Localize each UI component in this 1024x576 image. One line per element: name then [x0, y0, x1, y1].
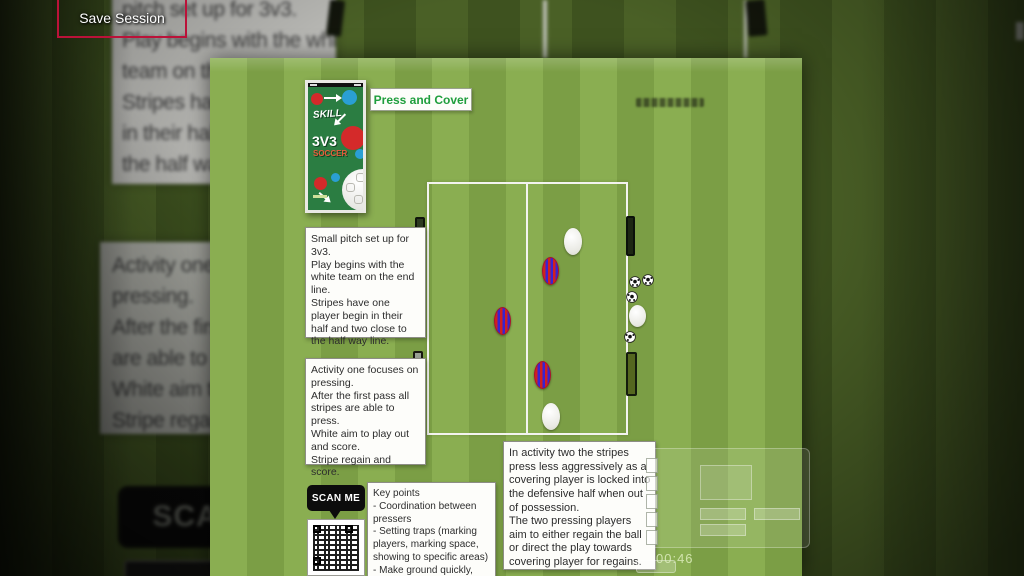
activity-two-note[interactable]: In activity two the stripes press less a… — [503, 441, 656, 570]
book-author-text-blur — [313, 195, 327, 198]
ghost-toolbar-chip — [646, 494, 658, 509]
white-player-3[interactable] — [629, 305, 646, 327]
book-title-soccer: SOCCER — [313, 150, 347, 158]
background-goal-post — [745, 0, 767, 37]
ghost-toolbar-chip — [646, 530, 658, 545]
stripes-player-2[interactable] — [494, 307, 511, 335]
soccer-ball-icon[interactable] — [642, 273, 654, 285]
qr-code-sheet — [307, 519, 365, 576]
scan-me-bubble: SCAN ME — [307, 485, 365, 511]
drill-pitch — [427, 182, 628, 435]
key-points-title: Key points — [373, 488, 491, 501]
soccer-ball-icon[interactable] — [624, 330, 636, 342]
book-red-circle-large — [341, 126, 365, 150]
white-player-1[interactable] — [564, 228, 582, 255]
soccer-ball-icon[interactable] — [629, 275, 641, 287]
ghost-toolbar-chip — [646, 476, 658, 491]
activity-one-note[interactable]: Activity one focuses on pressing. After … — [305, 358, 426, 465]
setup-note[interactable]: Small pitch set up for 3v3. Play begins … — [305, 227, 426, 338]
book-red-circle — [311, 93, 323, 105]
ghost-row — [700, 524, 746, 536]
book-cover: SKILL 3V3 SOCCER — [305, 80, 366, 213]
background-highlight — [1016, 22, 1024, 40]
goal-right-bottom[interactable] — [626, 352, 637, 396]
stripes-player-3[interactable] — [534, 361, 551, 389]
ghost-mini-pitch — [700, 465, 752, 500]
app-stage: pitch set up for 3v3. Play begins with t… — [0, 0, 1024, 576]
watermark-text-blur — [636, 98, 704, 107]
goal-right-top[interactable] — [626, 216, 635, 256]
session-title[interactable]: Press and Cover — [370, 88, 472, 111]
book-blue-circle — [355, 149, 365, 159]
ghost-toolbar-chip — [646, 458, 658, 473]
panel-top-highlight — [210, 58, 802, 72]
ghost-row — [754, 508, 800, 520]
ghost-row — [700, 508, 746, 520]
key-points-note[interactable]: Key points - Coordination between presse… — [367, 482, 496, 576]
scan-me-bubble-tail — [329, 510, 341, 519]
background-goal-line — [543, 0, 547, 58]
key-points-bullet: - Make ground quickly, — [373, 565, 491, 576]
qr-finder-icon — [313, 557, 321, 565]
ghost-toolbar-chip — [646, 512, 658, 527]
video-timer: 00:46 — [656, 551, 694, 566]
book-cover-top-bar — [308, 83, 363, 87]
book-title-3v3: 3V3 — [312, 134, 337, 148]
key-points-bullet: - Setting traps (marking players, markin… — [373, 526, 491, 564]
book-arrow-icon — [324, 97, 337, 99]
background-goal-post — [326, 0, 345, 37]
book-red-circle — [314, 177, 327, 190]
white-player-2[interactable] — [542, 403, 560, 430]
key-points-bullet: - Coordination between pressers — [373, 501, 491, 527]
stripes-player-1[interactable] — [542, 257, 559, 285]
qr-finder-icon — [345, 525, 353, 533]
qr-finder-icon — [313, 525, 321, 533]
soccer-ball-icon[interactable] — [626, 290, 638, 302]
save-session-button[interactable]: Save Session — [57, 0, 187, 38]
book-blue-circle — [342, 90, 357, 105]
book-blue-circle — [331, 173, 340, 182]
book-soccer-ball-icon — [342, 169, 366, 211]
halfway-line — [526, 184, 528, 433]
